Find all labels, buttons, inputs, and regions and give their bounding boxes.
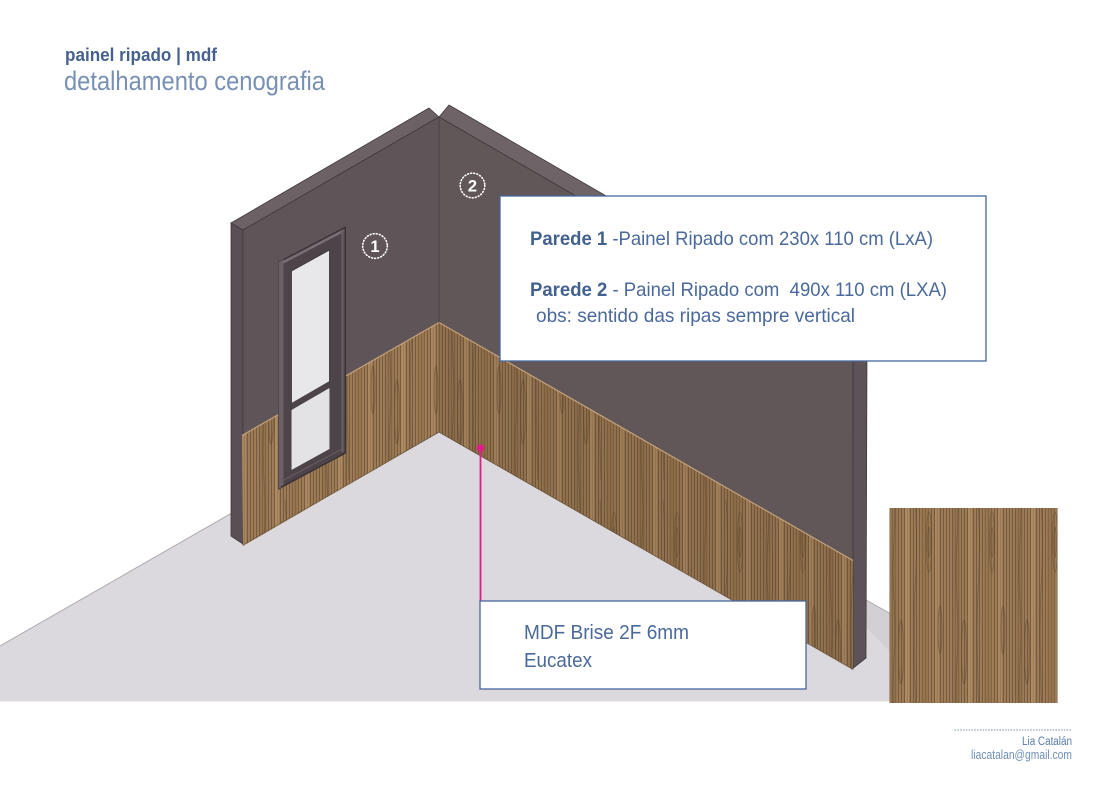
svg-text:liacatalan@gmail.com: liacatalan@gmail.com [971,748,1072,762]
svg-text:detalhamento cenografia: detalhamento cenografia [64,66,326,96]
svg-text:obs: sentido das ripas sempre: obs: sentido das ripas sempre vertical [536,305,855,327]
svg-text:Parede 1 -Painel Ripado com 23: Parede 1 -Painel Ripado com 230x 110 cm … [530,228,933,250]
svg-text:painel ripado | mdf: painel ripado | mdf [65,45,218,65]
svg-text:1: 1 [370,238,379,256]
svg-text:Parede 2 - Painel Ripado com: Parede 2 - Painel Ripado com 490x 110 cm… [530,279,947,301]
svg-text:Eucatex: Eucatex [524,650,592,672]
svg-text:2: 2 [468,177,477,195]
svg-text:Lia Catalán: Lia Catalán [1022,736,1072,748]
svg-text:MDF Brise 2F 6mm: MDF Brise 2F 6mm [524,622,689,644]
